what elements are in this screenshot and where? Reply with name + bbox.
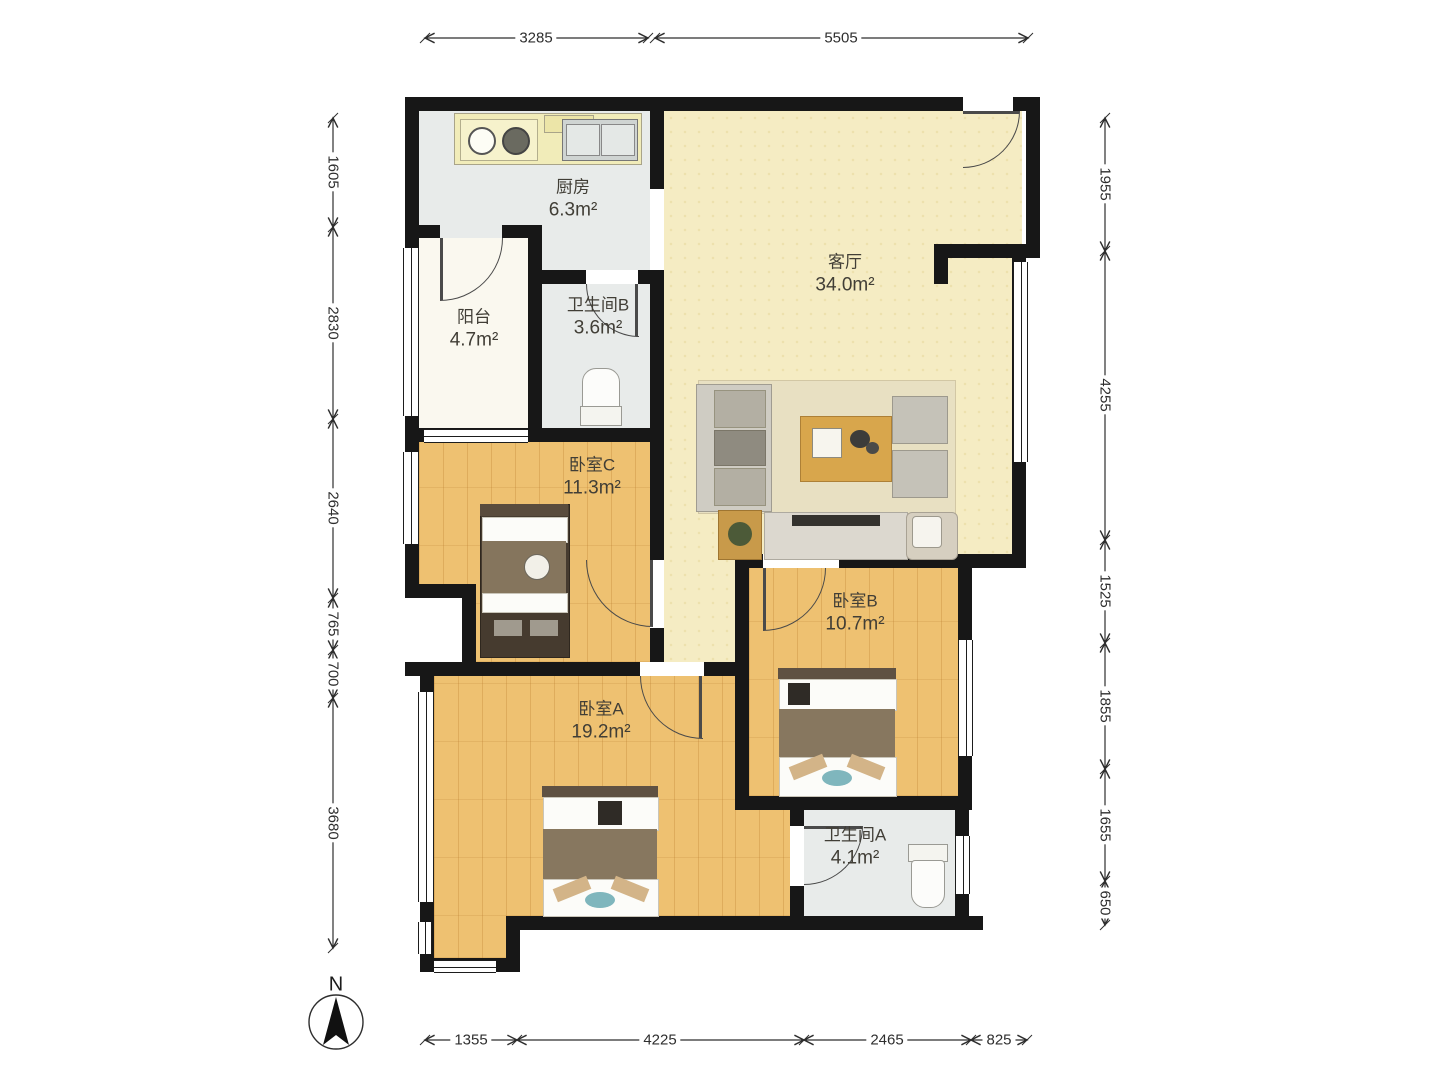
dim-label-left: 765 — [325, 608, 342, 639]
dim-label-bottom: 1355 — [450, 1032, 491, 1049]
dim-label-right: 4255 — [1097, 375, 1114, 414]
dim-label-bottom: 4225 — [639, 1032, 680, 1049]
dim-label-top: 3285 — [515, 30, 556, 47]
compass-icon — [309, 995, 363, 1049]
dim-label-bottom: 2465 — [866, 1032, 907, 1049]
dim-label-left: 1605 — [325, 152, 342, 191]
dim-label-right: 1955 — [1097, 164, 1114, 203]
dim-label-right: 650 — [1097, 887, 1114, 918]
dim-label-left: 700 — [325, 658, 342, 689]
dim-label-right: 1655 — [1097, 805, 1114, 844]
dim-label-left: 2640 — [325, 488, 342, 527]
dim-label-right: 1525 — [1097, 571, 1114, 610]
floor-plan: 厨房 6.3m² 阳台 4.7m² 卫生间B 3.6m² 客厅 34.0m² 卧… — [0, 0, 1440, 1080]
dim-label-left: 2830 — [325, 303, 342, 342]
dim-label-right: 1855 — [1097, 686, 1114, 725]
dim-label-left: 3680 — [325, 803, 342, 842]
compass-north-label: N — [329, 974, 343, 997]
dim-label-bottom: 825 — [982, 1032, 1015, 1049]
dimension-lines — [0, 0, 1440, 1080]
dim-label-top: 5505 — [820, 30, 861, 47]
